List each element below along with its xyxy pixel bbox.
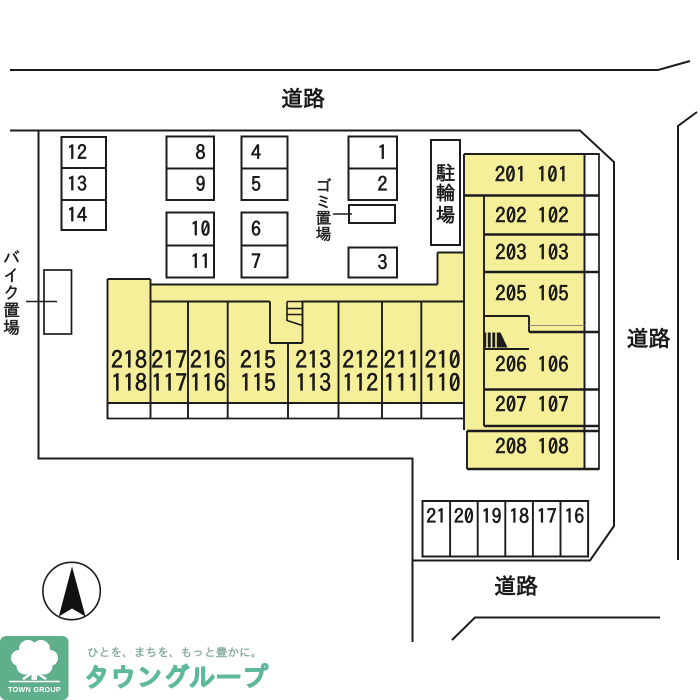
svg-text:TOWN GROUP: TOWN GROUP [8, 685, 61, 694]
